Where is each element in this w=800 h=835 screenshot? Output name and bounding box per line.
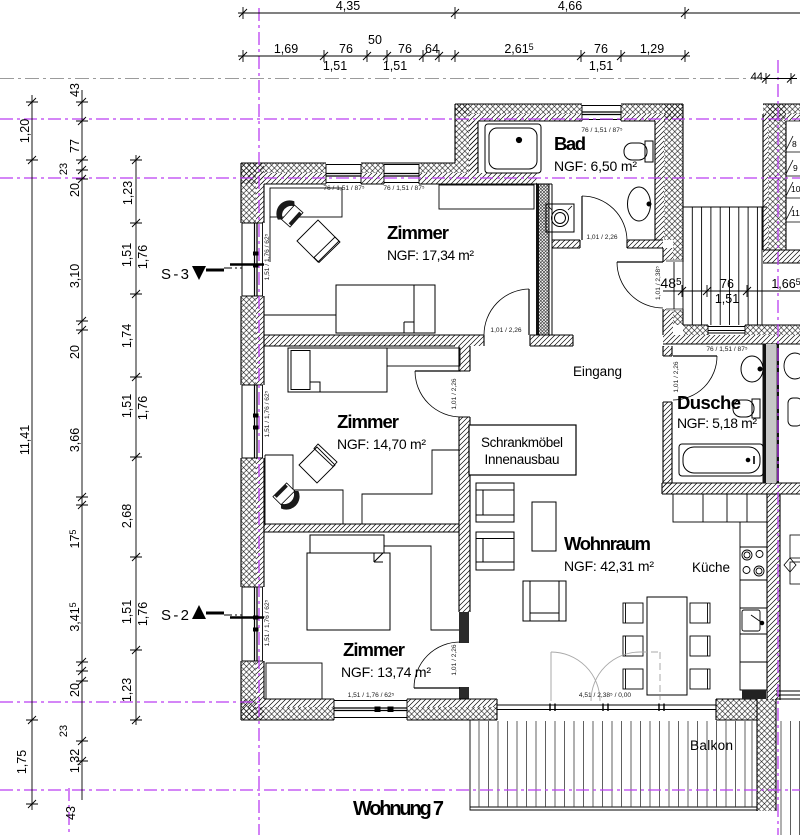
svg-text:Eingang: Eingang [573, 364, 622, 379]
svg-text:50: 50 [368, 33, 382, 47]
svg-text:2,68: 2,68 [120, 504, 134, 528]
svg-text:20: 20 [68, 183, 82, 197]
svg-text:43: 43 [68, 83, 82, 97]
svg-text:1,51 / 1,76 / 62⁵: 1,51 / 1,76 / 62⁵ [264, 599, 271, 646]
svg-text:1,01 / 2,26: 1,01 / 2,26 [586, 234, 617, 241]
svg-text:1,76: 1,76 [136, 396, 150, 420]
svg-text:76 / 1,51 / 87⁵: 76 / 1,51 / 87⁵ [383, 185, 424, 192]
svg-text:1,74: 1,74 [120, 324, 134, 348]
svg-text:NGF: 5,18 m²: NGF: 5,18 m² [677, 415, 757, 431]
svg-text:1,01 / 2,26: 1,01 / 2,26 [673, 361, 680, 392]
svg-text:1,01 / 2,26: 1,01 / 2,26 [490, 327, 521, 334]
svg-text:11: 11 [791, 208, 800, 218]
svg-text:Zimmer: Zimmer [337, 411, 399, 432]
svg-text:NGF: 6,50 m²: NGF: 6,50 m² [554, 158, 637, 174]
svg-text:10: 10 [791, 184, 800, 194]
svg-text:1,29: 1,29 [640, 42, 664, 56]
svg-text:20: 20 [68, 683, 82, 697]
svg-text:Dusche: Dusche [677, 392, 741, 413]
svg-text:76 / 1,51 / 87⁵: 76 / 1,51 / 87⁵ [581, 127, 622, 134]
svg-text:76: 76 [339, 42, 353, 56]
svg-text:3,10: 3,10 [68, 264, 82, 288]
svg-text:S-3: S-3 [161, 266, 189, 283]
svg-text:20: 20 [68, 345, 82, 359]
svg-text:Bad: Bad [554, 133, 586, 154]
svg-text:NGF: 17,34 m²: NGF: 17,34 m² [387, 247, 474, 263]
svg-text:NGF: 13,74 m²: NGF: 13,74 m² [341, 664, 431, 680]
svg-text:44: 44 [751, 71, 763, 83]
svg-text:3,66: 3,66 [68, 428, 82, 452]
svg-text:Innenausbau: Innenausbau [485, 452, 560, 467]
svg-text:NGF: 14,70 m²: NGF: 14,70 m² [337, 436, 426, 452]
svg-text:NGF: 42,31 m²: NGF: 42,31 m² [564, 558, 654, 574]
svg-text:Küche: Küche [692, 560, 730, 575]
svg-text:1,75: 1,75 [15, 750, 29, 774]
svg-text:1,51: 1,51 [120, 600, 134, 624]
svg-text:Wohnung 7: Wohnung 7 [353, 798, 444, 820]
svg-text:1,51 / 1,76 / 62⁵: 1,51 / 1,76 / 62⁵ [264, 233, 271, 280]
svg-text:1,20: 1,20 [18, 119, 32, 143]
svg-text:1,76: 1,76 [136, 245, 150, 269]
svg-text:76: 76 [398, 42, 412, 56]
svg-text:9: 9 [793, 163, 798, 173]
svg-text:1,01 / 2,38⁵: 1,01 / 2,38⁵ [655, 266, 662, 300]
svg-text:76: 76 [594, 42, 608, 56]
svg-text:1,51: 1,51 [589, 59, 613, 73]
svg-text:4,66: 4,66 [558, 0, 582, 13]
svg-text:Wohnraum: Wohnraum [564, 533, 651, 554]
svg-text:1,51: 1,51 [383, 59, 407, 73]
svg-text:76 / 1,51 / 87⁵: 76 / 1,51 / 87⁵ [323, 185, 364, 192]
svg-text:11,41: 11,41 [18, 425, 32, 455]
svg-text:S-2: S-2 [161, 607, 189, 624]
svg-text:4,35: 4,35 [336, 0, 360, 13]
svg-text:1,01 / 2,26: 1,01 / 2,26 [451, 378, 458, 409]
svg-text:77: 77 [68, 139, 82, 153]
svg-text:Schrankmöbel: Schrankmöbel [481, 435, 563, 450]
svg-text:1,69: 1,69 [274, 42, 298, 56]
svg-text:23: 23 [58, 725, 70, 737]
svg-text:1,51: 1,51 [120, 394, 134, 418]
svg-text:23: 23 [58, 163, 70, 175]
svg-text:1,23: 1,23 [120, 678, 134, 702]
svg-text:Balkon: Balkon [690, 738, 733, 753]
svg-text:Zimmer: Zimmer [343, 639, 405, 660]
svg-text:1,76: 1,76 [136, 602, 150, 626]
svg-text:1,23: 1,23 [121, 181, 135, 205]
svg-text:76: 76 [720, 277, 734, 291]
svg-text:1,51 / 1,76 / 62⁵: 1,51 / 1,76 / 62⁵ [264, 390, 271, 437]
svg-text:1,51: 1,51 [715, 292, 739, 306]
svg-text:43: 43 [64, 806, 78, 820]
svg-text:64: 64 [425, 42, 439, 56]
svg-text:4,51 / 2,38⁵ / 0,00: 4,51 / 2,38⁵ / 0,00 [579, 692, 632, 699]
svg-text:1,51 / 1,76 / 62⁵: 1,51 / 1,76 / 62⁵ [348, 692, 395, 699]
svg-text:1,51: 1,51 [120, 243, 134, 267]
svg-text:1,32: 1,32 [68, 749, 82, 773]
svg-text:76 / 1,51 / 87⁵: 76 / 1,51 / 87⁵ [706, 346, 747, 353]
svg-text:8: 8 [792, 139, 797, 149]
svg-text:Zimmer: Zimmer [387, 222, 449, 243]
svg-text:1,51: 1,51 [323, 59, 347, 73]
svg-text:1,01 / 2,26: 1,01 / 2,26 [451, 644, 458, 675]
